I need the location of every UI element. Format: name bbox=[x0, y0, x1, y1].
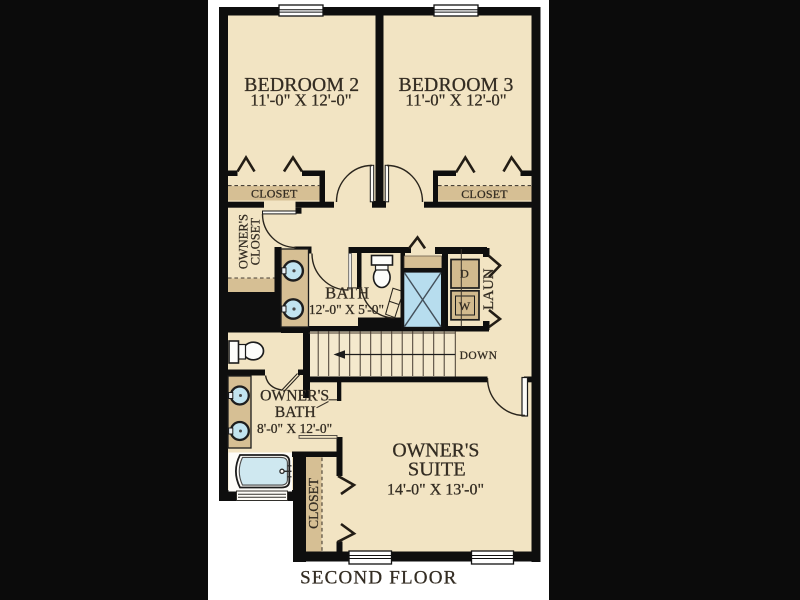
svg-text:CLOSET: CLOSET bbox=[251, 187, 298, 201]
svg-text:SECOND FLOOR: SECOND FLOOR bbox=[300, 567, 457, 588]
svg-text:D: D bbox=[460, 267, 469, 281]
svg-text:11'-0" X 12'-0": 11'-0" X 12'-0" bbox=[405, 91, 506, 110]
svg-text:11'-0" X 12'-0": 11'-0" X 12'-0" bbox=[250, 91, 351, 110]
svg-text:W: W bbox=[459, 299, 471, 313]
svg-text:SUITE: SUITE bbox=[408, 459, 466, 481]
svg-text:LAUN: LAUN bbox=[481, 268, 497, 310]
svg-text:DOWN: DOWN bbox=[460, 350, 498, 362]
svg-text:12'-0" X 5'-0": 12'-0" X 5'-0" bbox=[309, 302, 384, 317]
svg-text:BATH: BATH bbox=[325, 284, 369, 303]
svg-text:CLOSET: CLOSET bbox=[306, 477, 321, 529]
svg-text:BATH: BATH bbox=[275, 404, 316, 421]
svg-text:8'-0" X 12'-0": 8'-0" X 12'-0" bbox=[257, 421, 332, 436]
svg-text:CLOSET: CLOSET bbox=[461, 187, 508, 201]
svg-text:CLOSET: CLOSET bbox=[249, 218, 263, 266]
svg-text:14'-0" X 13'-0": 14'-0" X 13'-0" bbox=[387, 481, 484, 498]
svg-text:OWNER'S: OWNER'S bbox=[260, 387, 329, 404]
